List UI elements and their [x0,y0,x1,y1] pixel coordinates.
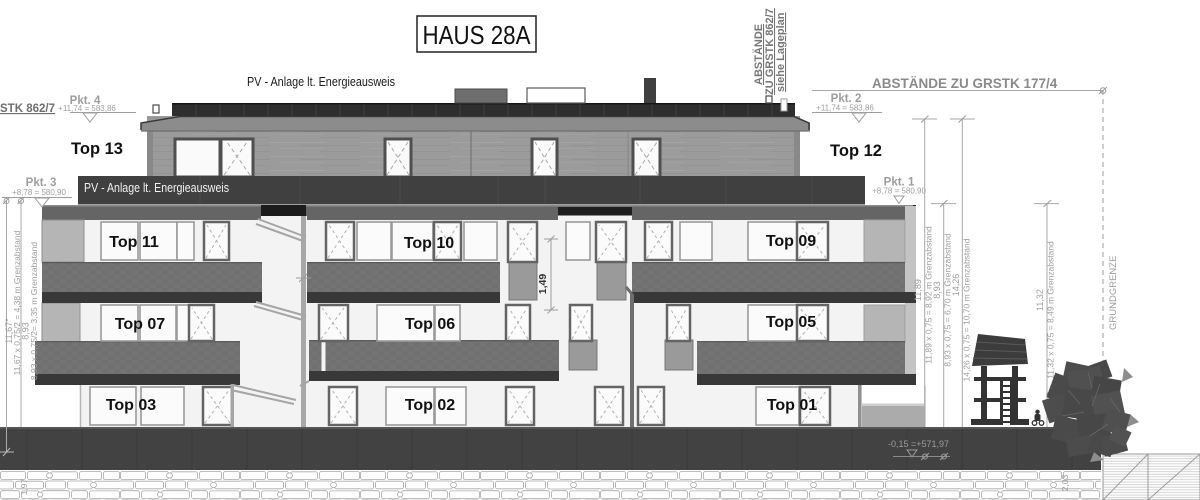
svg-text:2,03: 2,03 [1060,474,1070,491]
svg-text:Top 11: Top 11 [109,234,159,251]
svg-text:HAUS 28A: HAUS 28A [423,20,532,50]
svg-text:1,97: 1,97 [19,478,29,495]
svg-text:PV - Anlage lt. Energieausweis: PV - Anlage lt. Energieausweis [84,181,229,195]
svg-text:11,32: 11,32 [1035,289,1045,311]
svg-text:+11,74 = 583,86: +11,74 = 583,86 [58,104,116,113]
svg-text:Top 02: Top 02 [405,397,455,414]
svg-text:+11,74 = 583,86: +11,74 = 583,86 [816,104,874,113]
svg-text:Top 06: Top 06 [405,316,455,333]
svg-text:8,93 x 0,75/2= 3,35 m Grenzabs: 8,93 x 0,75/2= 3,35 m Grenzabstand [29,242,39,380]
svg-text:1,49: 1,49 [537,274,549,295]
svg-text:-0,15 =+571,97: -0,15 =+571,97 [888,439,949,449]
svg-text:Top 12: Top 12 [830,142,882,160]
svg-text:PV - Anlage lt. Energieausweis: PV - Anlage lt. Energieausweis [247,75,395,89]
svg-text:8,93 x 0,75 = 6,70 m Grenzabst: 8,93 x 0,75 = 6,70 m Grenzabstand [943,233,953,367]
svg-text:Top 01: Top 01 [767,397,817,414]
svg-text:GRUNDGRENZE: GRUNDGRENZE [1108,256,1119,330]
svg-text:14,26 x 0,75 = 10,70 m Grenzab: 14,26 x 0,75 = 10,70 m Grenzabstand [962,238,972,381]
svg-text:14,26: 14,26 [951,274,961,297]
svg-text:11,89: 11,89 [913,279,923,301]
svg-text:+8,78 = 580,90: +8,78 = 580,90 [872,187,926,196]
svg-text:11,67 x 0,75/2 = 4,38 m Grenza: 11,67 x 0,75/2 = 4,38 m Grenzabstand [12,230,22,375]
svg-text:Top 10: Top 10 [404,235,454,252]
svg-text:Top 13: Top 13 [71,140,123,158]
svg-text:ABSTÄNDE ZU GRSTK 177/4: ABSTÄNDE ZU GRSTK 177/4 [872,76,1058,91]
svg-text:+8,78 = 580,90: +8,78 = 580,90 [12,188,66,197]
svg-text:STK 862/7: STK 862/7 [0,103,55,115]
svg-text:11,32 x 0,75 = 8,49 m Grenzabs: 11,32 x 0,75 = 8,49 m Grenzabstand [1046,241,1056,379]
svg-text:8,93: 8,93 [932,281,942,299]
svg-text:siehe Lageplan: siehe Lageplan [775,12,787,92]
svg-text:Top 05: Top 05 [766,314,816,331]
svg-text:Top 07: Top 07 [115,316,165,333]
svg-text:Top 03: Top 03 [106,397,156,414]
svg-text:Top 09: Top 09 [766,233,816,250]
